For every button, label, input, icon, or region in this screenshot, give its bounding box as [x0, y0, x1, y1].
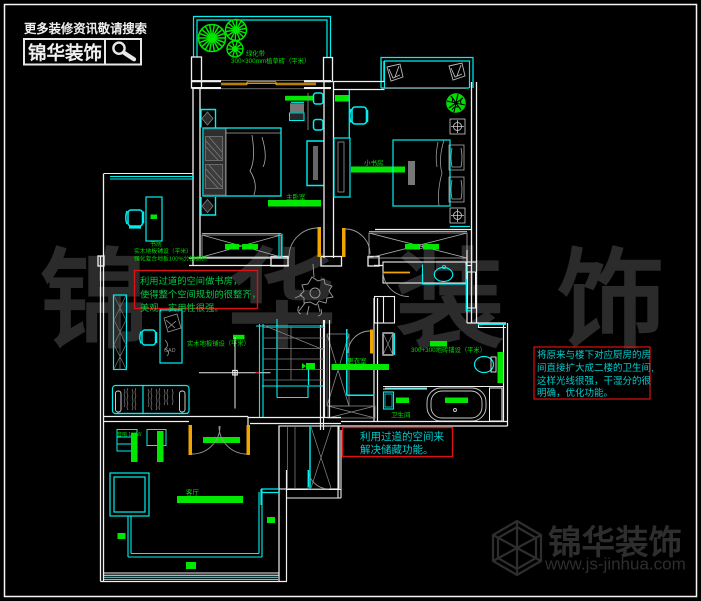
svg-text:将原来与楼下对应厨房的房: 将原来与楼下对应厨房的房 [537, 349, 651, 361]
svg-text:明确，优化功能。: 明确，优化功能。 [537, 387, 613, 399]
svg-text:CAD: CAD [164, 348, 176, 354]
svg-text:实木地板铺设（平米）: 实木地板铺设（平米） [134, 247, 192, 255]
svg-text:饰: 饰 [557, 240, 665, 361]
svg-text:实木地板铺设（平米）: 实木地板铺设（平米） [187, 339, 250, 348]
svg-text:更衣室: 更衣室 [347, 356, 367, 365]
svg-text:绿化带: 绿化带 [246, 49, 265, 58]
svg-text:更多装修资讯敬请搜索: 更多装修资讯敬请搜索 [24, 21, 147, 36]
svg-text:利用过道的空间做书房，: 利用过道的空间做书房， [140, 275, 242, 286]
svg-text:使得整个空间规划的很整齐，: 使得整个空间规划的很整齐， [140, 289, 261, 300]
svg-text:强化复合地板100%分铺面积: 强化复合地板100%分铺面积 [134, 255, 207, 263]
svg-text:300+300地砖铺设（平米）: 300+300地砖铺设（平米） [411, 345, 486, 354]
svg-text:书房: 书房 [150, 240, 162, 248]
svg-text:www.js-jinhua.com: www.js-jinhua.com [544, 555, 686, 574]
svg-text:小书房: 小书房 [364, 158, 384, 167]
svg-text:300×300mm植草砖（平米）: 300×300mm植草砖（平米） [231, 56, 310, 65]
svg-text:锦华装饰: 锦华装饰 [28, 43, 102, 64]
svg-text:间直接扩大成二楼的卫生间,: 间直接扩大成二楼的卫生间, [537, 362, 654, 374]
svg-text:客厅: 客厅 [186, 488, 200, 497]
svg-text:音响 100W: 音响 100W [117, 431, 142, 438]
svg-text:主卧室: 主卧室 [286, 192, 306, 201]
svg-text:锦: 锦 [40, 240, 148, 361]
svg-text:解决储藏功能。: 解决储藏功能。 [360, 443, 434, 456]
svg-text:这样光线很强，干湿分的很: 这样光线很强，干湿分的很 [537, 375, 652, 387]
svg-text:利用过道的空间来: 利用过道的空间来 [360, 430, 444, 443]
svg-text:卫生间: 卫生间 [391, 410, 411, 419]
